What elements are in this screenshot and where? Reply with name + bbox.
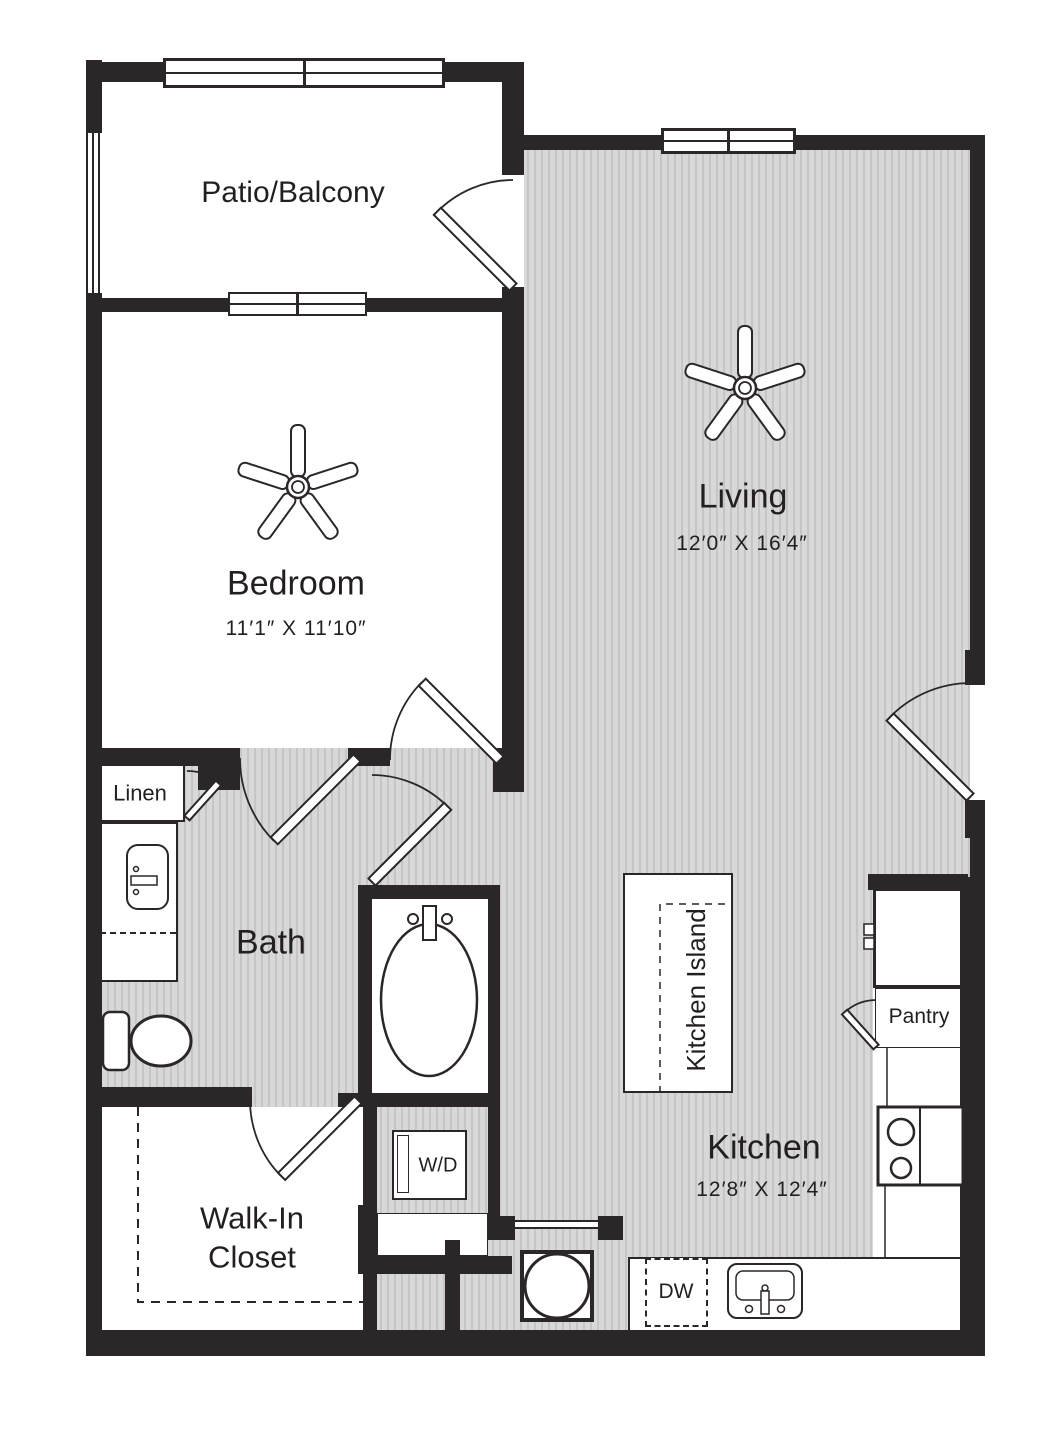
bedroom-dims: 11′1″ X 11′10″: [225, 617, 366, 641]
closet-door-arc: [250, 1100, 281, 1176]
living-label: Living: [699, 477, 788, 516]
walkin-closet-label: Walk-In Closet: [200, 1199, 304, 1277]
bath-door-arc: [240, 758, 274, 841]
fixtures-layer: [0, 0, 1058, 1432]
kitchen-island-label: Kitchen Island: [682, 908, 712, 1071]
tub-door-leaf: [368, 803, 451, 886]
bedroom-door-arc: [390, 682, 422, 760]
water-heater-icon: [522, 1252, 592, 1320]
patio-door-arc: [437, 180, 513, 212]
stove-icon: [878, 1107, 963, 1185]
tub-door-arc: [372, 775, 448, 807]
bath-door-leaf: [271, 754, 361, 844]
bathtub-icon: [381, 906, 477, 1076]
dw-label: DW: [659, 1280, 694, 1304]
pantry-door-arc: [845, 1000, 876, 1012]
kitchen-dims: 12′8″ X 12′4″: [696, 1178, 828, 1202]
pantry-door-leaf: [842, 1010, 879, 1050]
fridge-handles: [864, 924, 874, 949]
wd-label: W/D: [419, 1155, 458, 1178]
closet-door-leaf: [278, 1096, 361, 1179]
kitchen-label: Kitchen: [707, 1128, 820, 1167]
bath-label: Bath: [236, 923, 306, 962]
bedroom-door-leaf: [419, 679, 504, 764]
bedroom-label: Bedroom: [227, 564, 365, 603]
entry-door-arc: [890, 683, 970, 717]
linen-door-leaf: [184, 781, 221, 821]
patio-label: Patio/Balcony: [201, 176, 384, 211]
living-ceiling-fan-icon: [684, 326, 806, 442]
kitchen-sink-icon: [728, 1264, 802, 1318]
living-dims: 12′0″ X 16′4″: [676, 532, 808, 556]
door-leaves: [184, 208, 973, 1180]
patio-door-leaf: [434, 208, 517, 291]
vanity-sink-icon: [127, 845, 168, 909]
pantry-label: Pantry: [889, 1005, 950, 1029]
entry-door-leaf: [887, 714, 974, 801]
floorplan: Patio/Balcony Bedroom 11′1″ X 11′10″ Liv…: [0, 0, 1058, 1432]
toilet-icon: [103, 1012, 191, 1070]
bedroom-ceiling-fan-icon: [237, 425, 359, 541]
linen-label: Linen: [113, 780, 167, 805]
